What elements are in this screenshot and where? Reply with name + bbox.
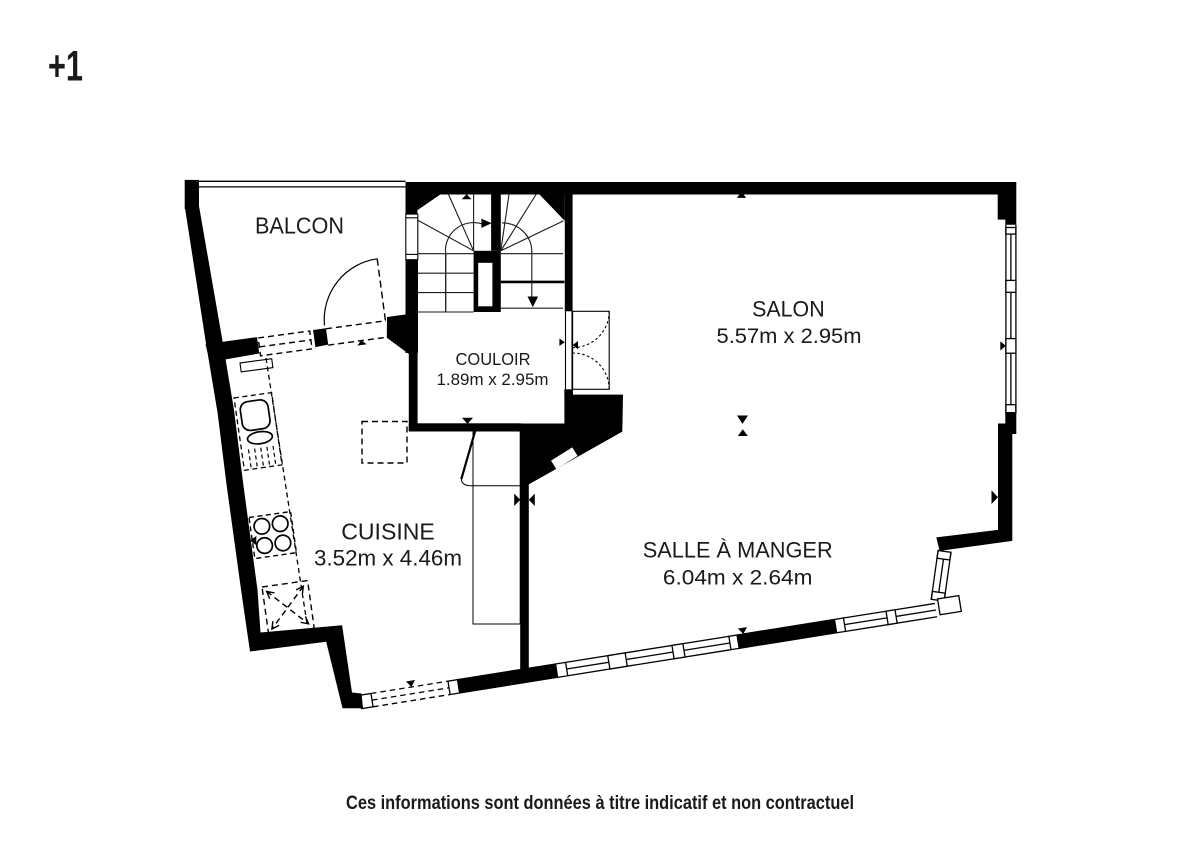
svg-text:6.04m x 2.64m: 6.04m x 2.64m xyxy=(663,565,813,589)
svg-text:+1: +1 xyxy=(48,42,83,90)
svg-text:1.89m x 2.95m: 1.89m x 2.95m xyxy=(437,370,549,389)
svg-text:COULOIR: COULOIR xyxy=(456,349,531,369)
svg-text:BALCON: BALCON xyxy=(255,213,344,239)
svg-text:Ces informations sont données: Ces informations sont données à titre in… xyxy=(346,792,854,814)
svg-text:SALLE À MANGER: SALLE À MANGER xyxy=(643,538,833,563)
svg-text:5.57m x 2.95m: 5.57m x 2.95m xyxy=(717,324,862,348)
svg-text:CUISINE: CUISINE xyxy=(341,518,435,544)
svg-text:3.52m x 4.46m: 3.52m x 4.46m xyxy=(314,545,462,570)
svg-text:SALON: SALON xyxy=(752,297,825,322)
